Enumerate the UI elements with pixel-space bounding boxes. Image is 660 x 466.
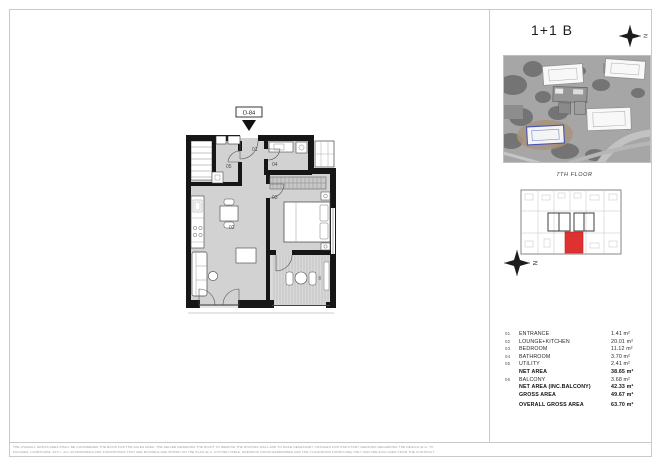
floorplan-sheet: D-84 xyxy=(0,0,660,466)
room-label-utility: 05 xyxy=(226,164,232,170)
room-label-bedroom: 03 xyxy=(272,195,278,201)
svg-text:N: N xyxy=(531,261,537,265)
floorplan-drawing: D-84 xyxy=(182,102,340,320)
floor-label: 7TH FLOOR xyxy=(492,172,657,178)
wardrobe xyxy=(270,177,326,189)
table-row: 04BATHROOM3.70 m² xyxy=(505,354,649,362)
footer-divider xyxy=(9,442,651,443)
building-footprint xyxy=(587,107,632,131)
entrance-arrow-icon xyxy=(242,120,256,131)
room-label-lounge: 02 xyxy=(229,225,235,231)
compass-keyplan-icon: N xyxy=(500,246,542,280)
room-label-entrance: 01 xyxy=(252,147,258,153)
table-row: 01ENTRANCE1.41 m² xyxy=(505,331,649,339)
table-row: 05UTILITY2.41 m² xyxy=(505,361,649,369)
sofa xyxy=(192,252,207,296)
panel-divider xyxy=(489,9,490,442)
svg-text:N: N xyxy=(641,34,647,38)
area-table: 01ENTRANCE1.41 m² 02LOUNGE+KITCHEN20.01 … xyxy=(505,331,649,409)
bathroom-fixtures xyxy=(269,142,307,153)
balcony-planter xyxy=(324,262,329,290)
table-row-overall-gross-area: OVERALL GROSS AREA63.70 m² xyxy=(505,402,649,410)
table-row-net-area-inc-balcony: NET AREA (INC.BALCONY)42.33 m² xyxy=(505,384,649,392)
building-footprint xyxy=(542,64,583,86)
balcony-table xyxy=(286,272,316,285)
site-aerial-image xyxy=(503,55,651,163)
unit-id-label: D-84 xyxy=(243,111,255,117)
kitchen-counter xyxy=(191,196,204,248)
disclaimer-line-1: THE OVERALL GROSS AREA SHALL BE CONSIDER… xyxy=(13,445,468,450)
shaft-box xyxy=(216,136,226,144)
table-row-net-area: NET AREA38.65 m² xyxy=(505,369,649,377)
compass-north-icon: N xyxy=(612,20,654,52)
shaft-box xyxy=(228,136,240,144)
washer-icon xyxy=(212,172,223,183)
disclaimer-text: THE OVERALL GROSS AREA SHALL BE CONSIDER… xyxy=(13,445,468,454)
room-label-balcony: 06 xyxy=(318,276,322,280)
room-label-bathroom: 04 xyxy=(272,162,278,168)
unit-type-title: 1+1 B xyxy=(492,22,612,38)
bed xyxy=(284,202,330,242)
table-row: 02LOUNGE+KITCHEN20.01 m² xyxy=(505,339,649,347)
side-table xyxy=(208,271,217,280)
stair-shaft xyxy=(191,141,212,180)
table-row: 06BALCONY3.68 m² xyxy=(505,377,649,385)
coffee-table xyxy=(236,248,256,263)
disclaimer-line-2: FACADES, LANDSCAPE, ETC.). ALL ACCESSORI… xyxy=(13,450,468,455)
highlighted-unit xyxy=(565,232,583,253)
service-shaft xyxy=(315,141,334,167)
table-row-gross-area: GROSS AREA49.67 m² xyxy=(505,392,649,400)
table-row: 03BEDROOM11.12 m² xyxy=(505,346,649,354)
building-footprint xyxy=(604,59,645,80)
